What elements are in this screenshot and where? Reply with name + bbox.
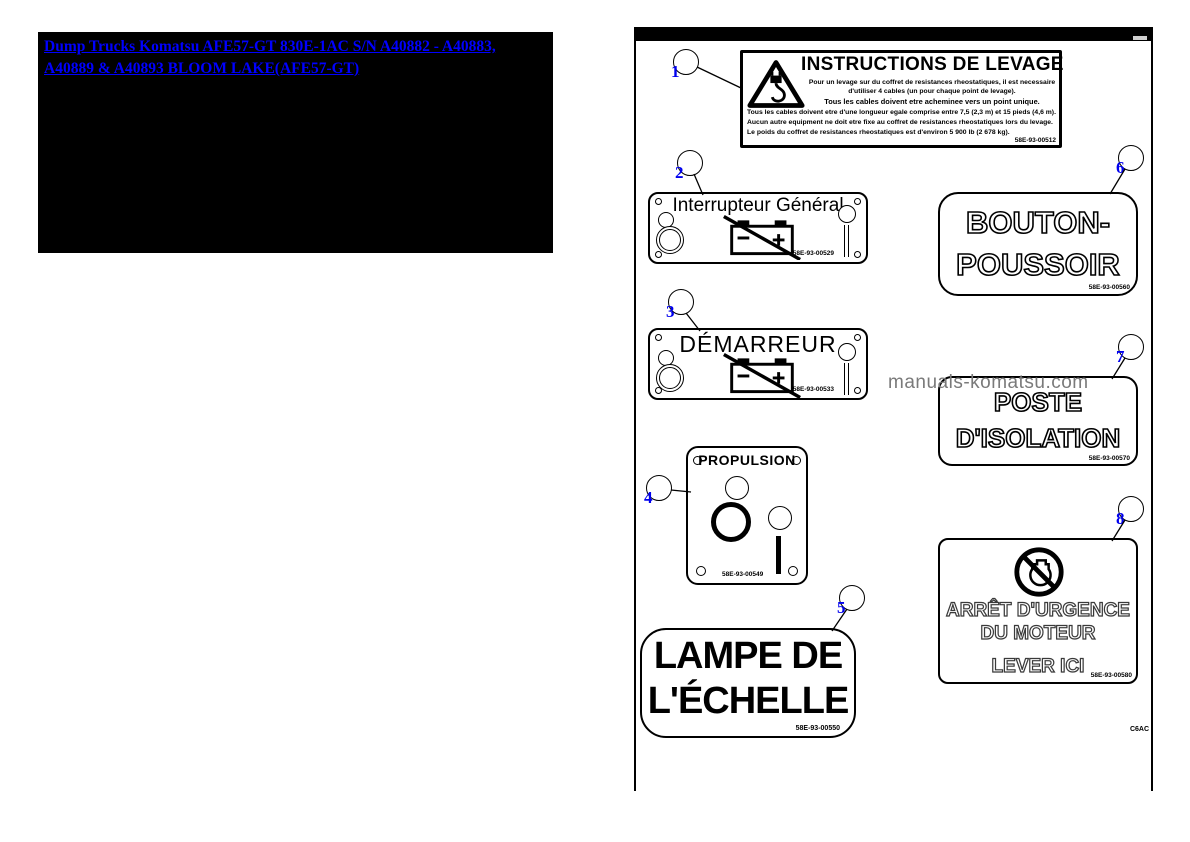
callout-7: 7: [1118, 334, 1144, 360]
decal-levage-line2: d'utiliser 4 cables (un pour chaque poin…: [807, 88, 1057, 97]
decal-poste-line2: D'ISOLATION: [940, 420, 1136, 456]
callout-number: 3: [666, 302, 675, 322]
decal-propulsion-part-number: 58E-93-00549: [722, 571, 763, 578]
selector-ring: [711, 502, 751, 542]
lever-knob-circle: [838, 343, 856, 361]
decal-levage-part-number: 58E-93-00512: [1015, 137, 1056, 144]
keyswitch-circle: [656, 364, 684, 392]
callout-1: 1: [673, 49, 699, 75]
callout-number: 4: [644, 488, 653, 508]
callout-number: 1: [671, 62, 680, 82]
decal-propulsion-title: PROPULSION: [688, 452, 806, 468]
sheet-code: C6AC: [1130, 726, 1149, 733]
callout-5: 5: [839, 585, 865, 611]
decal-interrupteur-general: Interrupteur Général 58E-93-00529: [648, 192, 868, 264]
decal-bouton-part-number: 58E-93-00560: [1089, 284, 1130, 291]
decal-arret-durgence: ARRÊT D'URGENCE DU MOTEUR LEVER ICI 58E-…: [938, 538, 1138, 684]
decal-lampe-line1: LAMPE DE: [642, 634, 854, 679]
manual-title-link[interactable]: Dump Trucks Komatsu AFE57-GT 830E-1AC S/…: [44, 36, 547, 79]
decal-instructions-de-levage: INSTRUCTIONS DE LEVAGE Pour un levage su…: [740, 50, 1062, 148]
decal-levage-line6: Le poids du coffret de resistances rheos…: [747, 129, 1057, 138]
callout-number: 6: [1116, 158, 1125, 178]
mounting-hole: [854, 387, 861, 394]
lever-bar: [776, 536, 781, 574]
decal-lampe-line2: L'ÉCHELLE: [642, 679, 854, 724]
lever-knob-circle: [838, 205, 856, 223]
decal-arret-part-number: 58E-93-00580: [1091, 672, 1132, 679]
keyswitch-circle-inner: [659, 229, 681, 251]
engine-stop-prohibition-icon: [1012, 545, 1066, 599]
lever-knob-circle: [768, 506, 792, 530]
panel-border-left: [634, 41, 636, 791]
decal-poste-part-number: 58E-93-00570: [1089, 455, 1130, 462]
callout-6: 6: [1118, 145, 1144, 171]
panel-border-right: [1151, 41, 1153, 791]
decal-lampe-de-lechelle: LAMPE DE L'ÉCHELLE 58E-93-00550: [640, 628, 856, 738]
warning-triangle-icon: [747, 58, 805, 110]
manual-title-box: Dump Trucks Komatsu AFE57-GT 830E-1AC S/…: [38, 32, 553, 253]
decal-bouton-line2: POUSSOIR: [940, 244, 1136, 286]
panel-top-bar-code: [1133, 36, 1147, 40]
callout-number: 8: [1116, 509, 1125, 529]
callout-2: 2: [677, 150, 703, 176]
decal-levage-line3: Tous les cables doivent etre acheminee v…: [807, 97, 1057, 107]
decal-interrupteur-part-number: 58E-93-00529: [793, 250, 834, 257]
callout-3: 3: [668, 289, 694, 315]
lever-line: [844, 363, 849, 395]
decal-levage-line4: Tous les cables doivent etre d'une longu…: [747, 109, 1057, 118]
decal-demarreur: DÉMARREUR 58E-93-00533: [648, 328, 868, 400]
decal-arret-line1: ARRÊT D'URGENCE: [940, 600, 1136, 622]
page: Dump Trucks Komatsu AFE57-GT 830E-1AC S/…: [0, 0, 1190, 842]
callout-8: 8: [1118, 496, 1144, 522]
keyswitch-circle: [656, 226, 684, 254]
panel-top-bar: [634, 27, 1153, 41]
callout-number: 5: [837, 598, 846, 618]
mounting-hole: [696, 566, 706, 576]
lever-line: [844, 225, 849, 257]
watermark-text: manuals-komatsu.com: [888, 372, 1089, 394]
keyswitch-circle-inner: [659, 367, 681, 389]
decal-arret-line2: DU MOTEUR: [940, 623, 1136, 645]
callout-4: 4: [646, 475, 672, 501]
mounting-hole: [655, 251, 662, 258]
callout-number: 7: [1116, 347, 1125, 367]
decal-bouton-line1: BOUTON-: [940, 202, 1136, 244]
decal-demarreur-part-number: 58E-93-00533: [793, 386, 834, 393]
decal-lampe-part-number: 58E-93-00550: [796, 725, 840, 732]
mounting-hole: [854, 251, 861, 258]
decal-levage-line1: Pour un levage sur du coffret de resista…: [807, 79, 1057, 88]
callout-number: 2: [675, 163, 684, 183]
decal-levage-line5: Aucun autre equipment ne doit etre fixe …: [747, 119, 1057, 128]
decal-levage-title: INSTRUCTIONS DE LEVAGE: [801, 54, 1059, 76]
decal-propulsion: PROPULSION 58E-93-00549: [686, 446, 808, 585]
mounting-hole: [788, 566, 798, 576]
decal-bouton-poussoir: BOUTON- POUSSOIR 58E-93-00560: [938, 192, 1138, 296]
selector-circle: [725, 476, 749, 500]
